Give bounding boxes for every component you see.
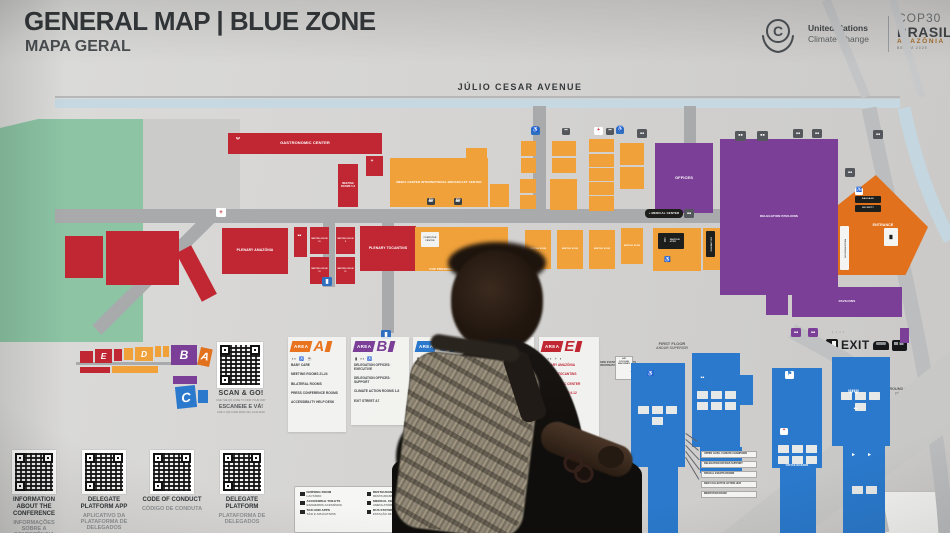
qr-finder-dot	[227, 485, 229, 487]
qr-finder	[220, 345, 230, 355]
qr-finder-dot	[255, 457, 257, 459]
qr-pattern	[85, 453, 123, 491]
qr-caption-pt: CÓDIGO DE CONDUTA	[141, 506, 203, 512]
qr-finder	[223, 481, 233, 491]
qr-finder	[223, 453, 233, 463]
qr-caption-pt: INFORMAÇÕES SOBRE A CONFERÊNCIA	[3, 520, 65, 533]
qr-caption-en: CODE OF CONDUCT	[141, 497, 203, 504]
photo-of-map-board: GENERAL MAP | BLUE ZONE MAPA GERAL C Uni…	[0, 0, 950, 533]
qr-finder-dot	[185, 457, 187, 459]
qr-caption: DELEGATE PLATFORMPLATAFORMA DE DELEGADOS	[211, 497, 273, 525]
qr-pattern	[223, 453, 261, 491]
qr-code-4	[220, 450, 264, 494]
qr-code-2	[82, 450, 126, 494]
qr-finder	[85, 453, 95, 463]
qr-finder	[153, 453, 163, 463]
qr-caption: INFORMATION ABOUT THE CONFERENCEINFORMAÇ…	[3, 497, 65, 533]
qr-finder	[220, 375, 230, 385]
qr-caption: DELEGATE PLATFORM APPAPLICATIVO DA PLATA…	[73, 497, 135, 532]
qr-pattern	[220, 345, 260, 385]
qr-finder-dot	[227, 457, 229, 459]
qr-caption-pt: PLATAFORMA DE DELEGADOS	[211, 513, 273, 526]
qr-finder-dot	[224, 379, 226, 381]
qr-code-1	[12, 450, 56, 494]
scan-go-qr	[217, 342, 263, 388]
qr-caption-en: DELEGATE PLATFORM	[211, 497, 273, 511]
qr-code-3	[150, 450, 194, 494]
qr-finder	[43, 453, 53, 463]
qr-finder	[15, 453, 25, 463]
qr-finder	[250, 345, 260, 355]
qr-pattern	[153, 453, 191, 491]
qr-finder	[113, 453, 123, 463]
qr-finder-dot	[47, 457, 49, 459]
qr-finder	[15, 481, 25, 491]
qr-finder-dot	[19, 485, 21, 487]
qr-finder-dot	[224, 349, 226, 351]
qr-finder	[251, 453, 261, 463]
qr-section: INFORMATION ABOUT THE CONFERENCEINFORMAÇ…	[0, 0, 950, 533]
qr-finder-dot	[89, 485, 91, 487]
qr-finder-dot	[117, 457, 119, 459]
qr-finder-dot	[254, 349, 256, 351]
qr-caption: CODE OF CONDUCTCÓDIGO DE CONDUTA	[141, 497, 203, 512]
qr-finder-dot	[157, 457, 159, 459]
qr-finder-dot	[89, 457, 91, 459]
qr-finder	[85, 481, 95, 491]
qr-caption-en: INFORMATION ABOUT THE CONFERENCE	[3, 497, 65, 518]
qr-finder	[153, 481, 163, 491]
qr-finder	[181, 453, 191, 463]
qr-pattern	[15, 453, 53, 491]
qr-finder-dot	[19, 457, 21, 459]
qr-caption-en: DELEGATE PLATFORM APP	[73, 497, 135, 511]
qr-finder-dot	[157, 485, 159, 487]
qr-caption-pt: APLICATIVO DA PLATAFORMA DE DELEGADOS	[73, 513, 135, 532]
